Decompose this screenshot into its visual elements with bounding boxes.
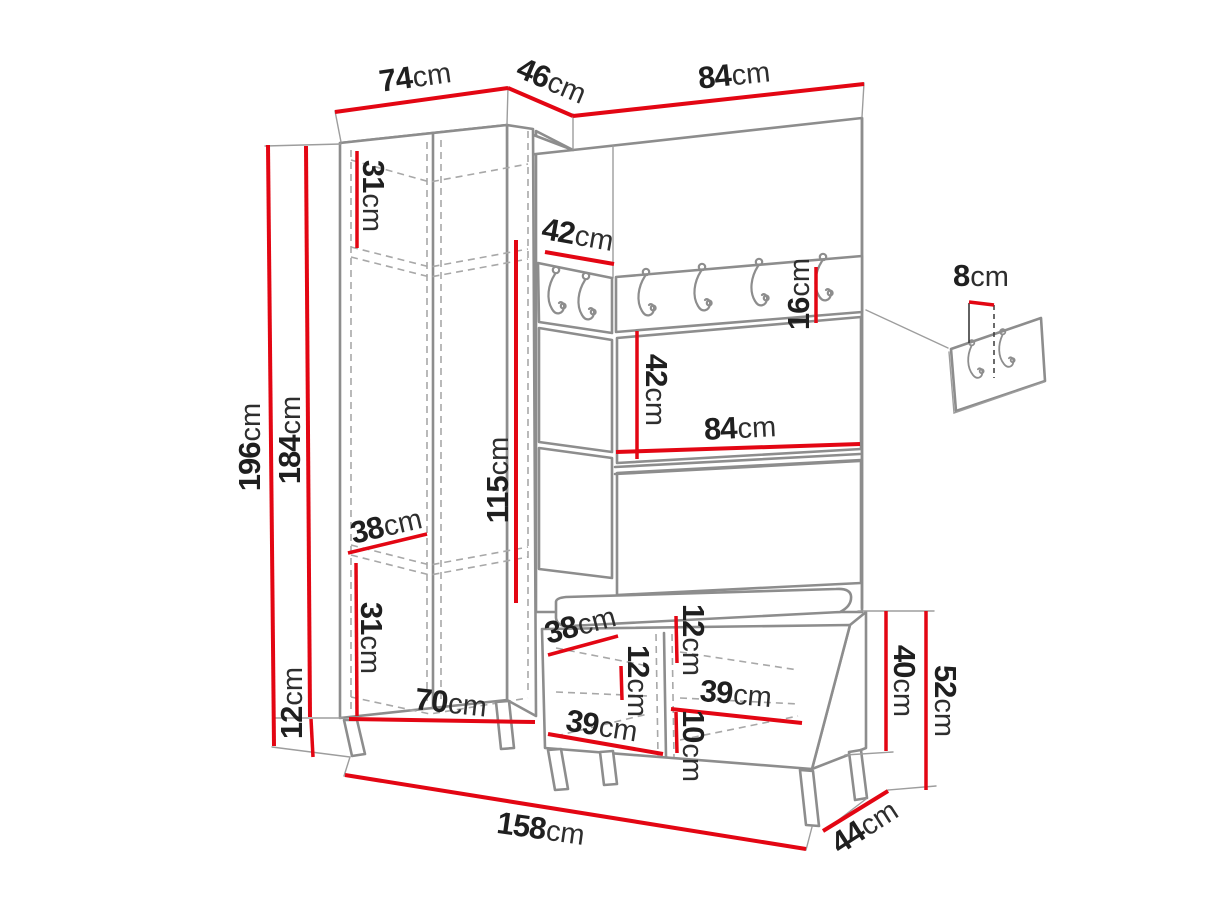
dim-label-44: 44cm: [824, 792, 904, 861]
dim-label-8-detail: 8cm: [953, 258, 1009, 293]
dim-label-12-legs: 12cm: [274, 667, 309, 739]
dim-label-52: 52cm: [928, 665, 963, 737]
dim-label-74: 74cm: [377, 54, 453, 99]
dim-label-40: 40cm: [887, 645, 922, 717]
dim-label-42-mid: 42cm: [639, 354, 674, 426]
dim-line-12-legs: [311, 719, 313, 757]
furniture-dimension-diagram: 74cm 46cm 84cm 196cm 184cm 12cm 31cm 115…: [0, 0, 1214, 910]
dim-label-12-bench-top: 12cm: [676, 604, 711, 676]
dim-label-31-bottom: 31cm: [354, 602, 389, 674]
wardrobe-side-sliver: [507, 125, 536, 716]
dim-line-8-detail: [969, 302, 994, 305]
dim-label-84-top: 84cm: [696, 53, 771, 95]
detail-leader-line: [866, 310, 948, 348]
dim-label-84-mid: 84cm: [703, 408, 777, 447]
dim-label-184: 184cm: [272, 396, 307, 484]
dim-label-10-bench: 10cm: [676, 710, 711, 782]
dim-label-16: 16cm: [781, 258, 816, 330]
dim-label-115: 115cm: [480, 437, 515, 524]
dim-label-12-bench-left: 12cm: [621, 645, 656, 717]
dim-label-46: 46cm: [512, 50, 592, 110]
wall-padding-panels: [539, 317, 861, 595]
wall-hook-detail-panel: [866, 303, 1045, 413]
dim-label-196: 196cm: [232, 403, 267, 491]
diagram-canvas: 74cm 46cm 84cm 196cm 184cm 12cm 31cm 115…: [0, 0, 1214, 910]
dim-label-31-top: 31cm: [356, 160, 391, 232]
